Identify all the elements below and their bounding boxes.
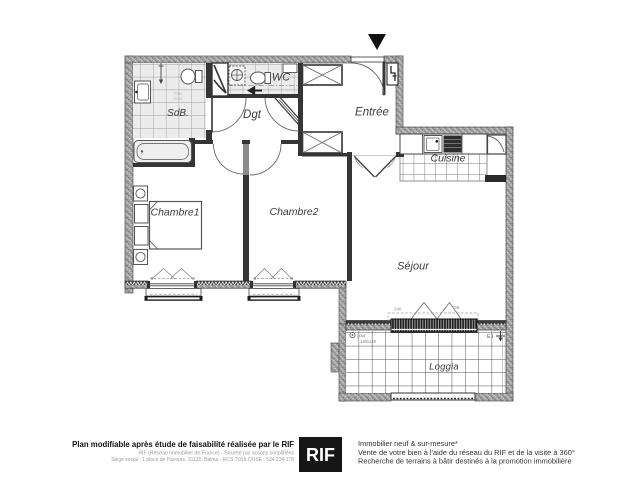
svg-text:Immobilier neuf & sur-mesure*: Immobilier neuf & sur-mesure* xyxy=(358,439,458,448)
svg-text:140x140: 140x140 xyxy=(360,339,377,344)
svg-text:Recherche de terrains à bâtir: Recherche de terrains à bâtir destinés à… xyxy=(358,457,572,466)
svg-text:haut: haut xyxy=(174,96,184,101)
svg-text:RIF: RIF xyxy=(306,445,335,465)
svg-text:Entrée: Entrée xyxy=(355,107,389,119)
svg-text:E.I: E.I xyxy=(487,334,493,340)
svg-text:OB: OB xyxy=(453,305,460,310)
svg-text:Vente de votre bien à l'aide d: Vente de votre bien à l'aide du réseau d… xyxy=(358,448,575,457)
svg-text:240: 240 xyxy=(394,307,402,312)
svg-text:Plan modifiable après étude de: Plan modifiable après étude de faisabili… xyxy=(72,440,294,449)
svg-text:WC: WC xyxy=(272,72,290,84)
svg-text:gout: gout xyxy=(357,333,366,338)
svg-text:RIF (Réseau Immobilier de Fran: RIF (Réseau Immobilier de France) - Soci… xyxy=(138,451,294,457)
svg-text:Dgt: Dgt xyxy=(243,109,262,121)
svg-text:Siège social : 1 place de Pavo: Siège social : 1 place de Pavours, 31130… xyxy=(111,457,294,463)
svg-text:Séjour: Séjour xyxy=(397,261,430,273)
svg-text:SdB.: SdB. xyxy=(167,108,189,119)
svg-text:Chambre2: Chambre2 xyxy=(269,206,318,218)
svg-text:Cuisine: Cuisine xyxy=(430,153,465,165)
svg-text:Chambre1: Chambre1 xyxy=(150,207,199,219)
svg-text:Loggia: Loggia xyxy=(429,362,459,373)
